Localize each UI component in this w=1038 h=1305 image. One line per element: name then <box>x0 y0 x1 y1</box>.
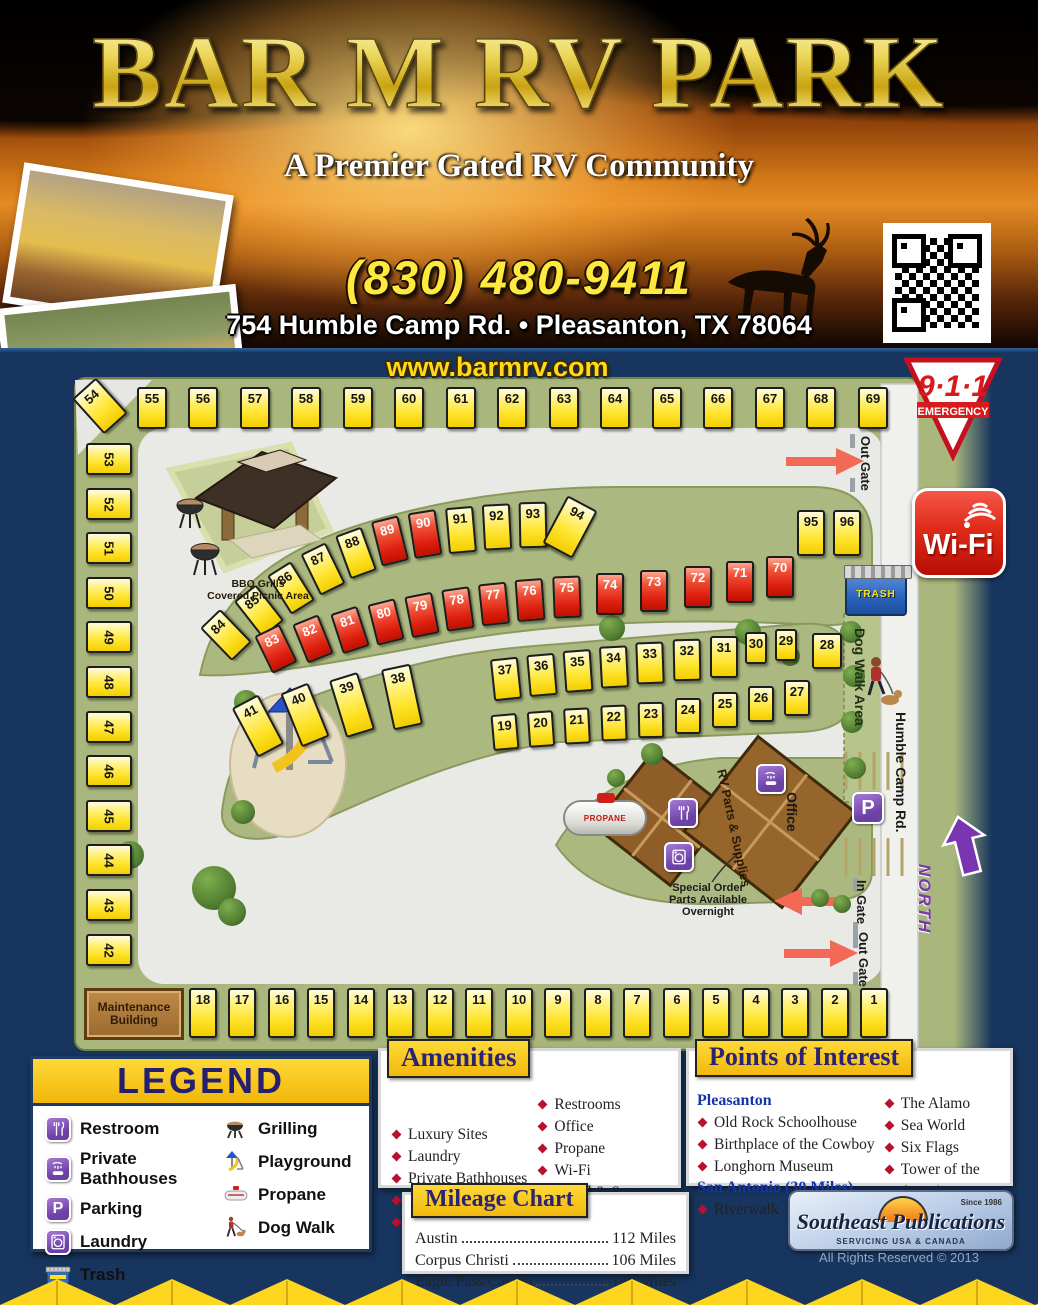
site-62: 62 <box>497 387 527 429</box>
bathhouse-icon <box>45 1156 71 1182</box>
site-10: 10 <box>505 988 533 1038</box>
site-31: 31 <box>710 636 738 678</box>
emergency-911-badge: 9·1·1 EMERGENCY <box>903 356 1003 462</box>
site-29: 29 <box>775 629 797 661</box>
site-52: 52 <box>86 488 132 520</box>
mileage-chart-panel: Mileage Chart Austin112 MilesCorpus Chri… <box>402 1192 689 1274</box>
site-9: 9 <box>544 988 572 1038</box>
site-26: 26 <box>748 686 774 722</box>
poi-item: Old Rock Schoolhouse <box>697 1112 884 1134</box>
amenities-panel: Amenities Luxury SitesLaundryPrivate Bat… <box>378 1048 681 1188</box>
site-13: 13 <box>386 988 414 1038</box>
poi-item: The Alamo <box>884 1093 1008 1115</box>
site-14: 14 <box>347 988 375 1038</box>
playground-icon <box>223 1149 249 1175</box>
publisher-logo: Since 1986 Southeast Publications SERVIC… <box>788 1190 1014 1251</box>
site-73: 73 <box>640 570 668 612</box>
site-30: 30 <box>745 632 767 664</box>
in-gate-label: In Gate <box>854 880 869 924</box>
site-22: 22 <box>600 705 627 742</box>
legend-item-restroom: Restroom <box>45 1116 223 1142</box>
mileage-row: Corpus Christi106 Miles <box>415 1250 676 1272</box>
site-70: 70 <box>766 556 794 598</box>
site-48: 48 <box>86 666 132 698</box>
laundry-icon <box>45 1229 71 1255</box>
site-8: 8 <box>584 988 612 1038</box>
amenity-item: Restrooms <box>537 1094 674 1116</box>
wifi-badge: Wi-Fi <box>912 488 1006 578</box>
mileage-value: 106 Miles <box>612 1250 676 1272</box>
site-43: 43 <box>86 889 132 921</box>
legend-label: Dog Walk <box>258 1218 335 1238</box>
amenities-title: Amenities <box>387 1039 530 1078</box>
site-27: 27 <box>784 680 810 716</box>
site-72: 72 <box>684 566 712 608</box>
publisher-name: Southeast Publications <box>790 1209 1012 1235</box>
legend-label: Playground <box>258 1152 352 1172</box>
site-4: 4 <box>742 988 770 1038</box>
amenity-item: Propane <box>537 1138 674 1160</box>
publisher-tagline: SERVICING USA & CANADA <box>790 1237 1012 1246</box>
site-44: 44 <box>86 844 132 876</box>
parking-icon: P <box>45 1196 71 1222</box>
svg-text:EMERGENCY: EMERGENCY <box>918 406 990 418</box>
site-63: 63 <box>549 387 579 429</box>
legend-panel: LEGEND RestroomPrivate BathhousesPParkin… <box>30 1056 372 1252</box>
site-92: 92 <box>482 503 512 550</box>
north-label: NORTH <box>914 864 934 934</box>
legend-title: LEGEND <box>33 1059 369 1106</box>
site-36: 36 <box>526 653 558 697</box>
site-51: 51 <box>86 532 132 564</box>
legend-label: Parking <box>80 1199 142 1219</box>
site-71: 71 <box>726 561 754 603</box>
dog-walk-area-label: Dog Walk Area <box>852 628 868 726</box>
site-15: 15 <box>307 988 335 1038</box>
site-95: 95 <box>797 510 825 556</box>
site-77: 77 <box>478 582 510 627</box>
poi-item: Longhorn Museum <box>697 1156 884 1178</box>
site-53: 53 <box>86 443 132 475</box>
restroom-icon <box>668 798 698 828</box>
legend-item-propane: Propane <box>223 1182 352 1208</box>
site-32: 32 <box>673 639 702 681</box>
site-58: 58 <box>291 387 321 429</box>
out-gate-top-label: Out Gate <box>858 436 873 491</box>
legend-label: Propane <box>258 1185 326 1205</box>
site-59: 59 <box>343 387 373 429</box>
site-3: 3 <box>781 988 809 1038</box>
poi-item: Six Flags <box>884 1137 1008 1159</box>
site-37: 37 <box>490 657 522 702</box>
amenity-item: Office <box>537 1116 674 1138</box>
mileage-title: Mileage Chart <box>411 1183 588 1218</box>
site-76: 76 <box>515 578 546 622</box>
site-57: 57 <box>240 387 270 429</box>
amenity-item: Wi-Fi <box>537 1160 674 1182</box>
propane-tank-icon: PROPANE <box>563 800 647 836</box>
amenity-item: Laundry <box>391 1146 537 1168</box>
site-19: 19 <box>490 713 519 751</box>
legend-item-dogwalk: Dog Walk <box>223 1215 352 1241</box>
site-5: 5 <box>702 988 730 1038</box>
site-45: 45 <box>86 800 132 832</box>
site-34: 34 <box>599 645 629 688</box>
legend-item-laundry: Laundry <box>45 1229 223 1255</box>
site-47: 47 <box>86 711 132 743</box>
legend-label: Grilling <box>258 1119 318 1139</box>
grill-icon <box>223 1116 249 1142</box>
poi-title: Points of Interest <box>695 1039 913 1077</box>
site-91: 91 <box>445 506 477 554</box>
site-46: 46 <box>86 755 132 787</box>
site-20: 20 <box>527 710 555 748</box>
site-21: 21 <box>563 707 591 744</box>
parking-icon: P <box>852 792 884 824</box>
site-33: 33 <box>635 642 664 685</box>
legend-item-bathhouse: Private Bathhouses <box>45 1149 223 1189</box>
bathhouse-icon <box>756 764 786 794</box>
site-50: 50 <box>86 577 132 609</box>
publisher-since: Since 1986 <box>961 1198 1002 1207</box>
website-url: www.barmrv.com <box>75 352 920 383</box>
site-49: 49 <box>86 621 132 653</box>
legend-label: Laundry <box>80 1232 147 1252</box>
office-label: Office <box>784 792 800 832</box>
site-67: 67 <box>755 387 785 429</box>
site-69: 69 <box>858 387 888 429</box>
site-65: 65 <box>652 387 682 429</box>
poi-item: Birthplace of the Cowboy <box>697 1134 884 1156</box>
legend-label: Restroom <box>80 1119 159 1139</box>
dogwalk-icon <box>223 1215 249 1241</box>
site-78: 78 <box>441 586 475 631</box>
site-6: 6 <box>663 988 691 1038</box>
copyright-text: All Rights Reserved © 2013 <box>788 1250 1010 1265</box>
site-7: 7 <box>623 988 651 1038</box>
site-61: 61 <box>446 387 476 429</box>
mileage-place: Austin <box>415 1228 458 1250</box>
site-66: 66 <box>703 387 733 429</box>
north-indicator: NORTH <box>924 812 994 962</box>
site-55: 55 <box>137 387 167 429</box>
site-12: 12 <box>426 988 454 1038</box>
site-42: 42 <box>86 934 132 966</box>
site-56: 56 <box>188 387 218 429</box>
legend-item-parking: PParking <box>45 1196 223 1222</box>
site-23: 23 <box>638 702 665 738</box>
laundry-icon <box>664 842 694 872</box>
special-order-label: Special Order Parts Available Overnight <box>648 882 768 918</box>
site-68: 68 <box>806 387 836 429</box>
poi-group-heading: Pleasanton <box>697 1091 884 1112</box>
mileage-row: Austin112 Miles <box>415 1228 676 1250</box>
site-74: 74 <box>596 573 624 615</box>
site-60: 60 <box>394 387 424 429</box>
legend-item-grill: Grilling <box>223 1116 352 1142</box>
site-18: 18 <box>189 988 217 1038</box>
brochure-page: BAR M RV PARK A Premier Gated RV Communi… <box>0 0 1038 1305</box>
mileage-place: Corpus Christi <box>415 1250 509 1272</box>
site-35: 35 <box>563 649 594 693</box>
site-16: 16 <box>268 988 296 1038</box>
out-gate-bottom-label: Out Gate <box>856 932 871 987</box>
site-17: 17 <box>228 988 256 1038</box>
zigzag-border <box>0 1277 1038 1305</box>
site-25: 25 <box>712 692 738 728</box>
site-11: 11 <box>465 988 493 1038</box>
site-24: 24 <box>675 698 701 734</box>
mileage-value: 112 Miles <box>612 1228 676 1250</box>
poi-item: Sea World <box>884 1115 1008 1137</box>
trash-dumpster-icon: TRASH <box>845 572 907 616</box>
points-of-interest-panel: Points of Interest PleasantonOld Rock Sc… <box>686 1048 1013 1186</box>
legend-item-playground: Playground <box>223 1149 352 1175</box>
road-name-label: Humble Camp Rd. <box>893 712 909 833</box>
site-28: 28 <box>812 633 842 669</box>
svg-text:9·1·1: 9·1·1 <box>918 370 988 403</box>
site-75: 75 <box>552 576 581 619</box>
site-1: 1 <box>860 988 888 1038</box>
site-96: 96 <box>833 510 861 556</box>
site-64: 64 <box>600 387 630 429</box>
amenity-item: Luxury Sites <box>391 1124 537 1146</box>
bbq-area-label: BBQ Grills Covered Picnic Area <box>178 578 338 602</box>
restroom-icon <box>45 1116 71 1142</box>
propane-icon <box>223 1182 249 1208</box>
maintenance-building: Maintenance Building <box>84 988 184 1040</box>
legend-label: Private Bathhouses <box>80 1149 223 1189</box>
site-2: 2 <box>821 988 849 1038</box>
